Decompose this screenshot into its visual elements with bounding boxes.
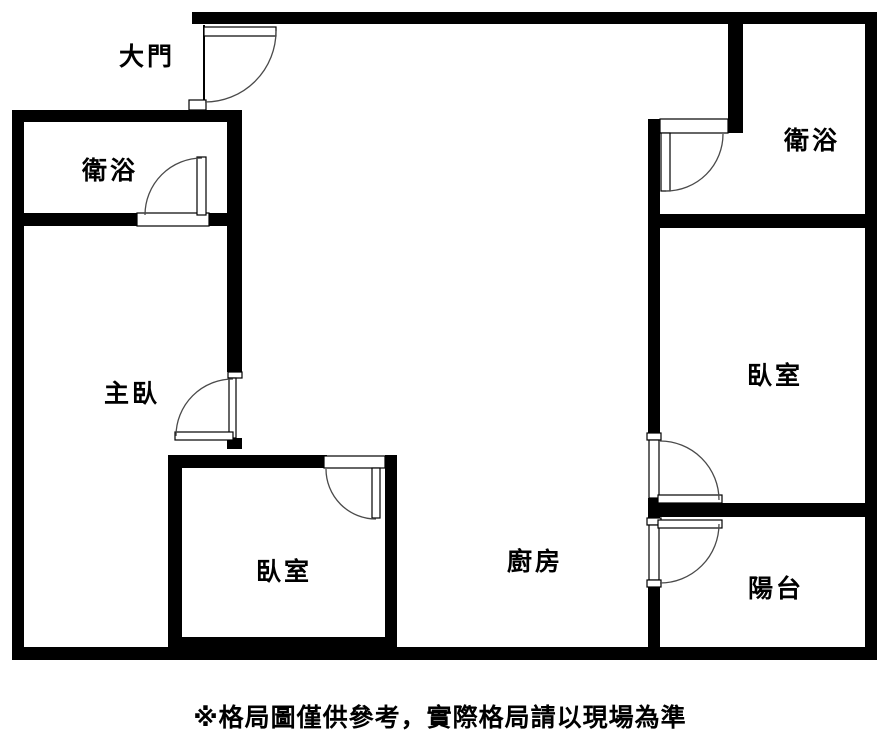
master-door-arc: [176, 379, 233, 436]
entrance-door-leaf: [204, 27, 276, 36]
wall-right-outer: [865, 12, 877, 660]
bedroom-right-door-arc: [660, 441, 719, 500]
wall-bath-left-bottom-b: [207, 213, 242, 226]
bedroom-bottom-door-arc: [326, 469, 376, 519]
kitchen-wall-jamb-3: [647, 580, 661, 587]
bath-right-door-frame: [660, 119, 728, 133]
bath-right-door-arc: [666, 134, 723, 191]
master-door-jamb: [228, 372, 242, 378]
wall-left-outer: [12, 110, 24, 660]
wall-bath-left-bottom-a: [12, 213, 138, 226]
walls: [12, 12, 877, 660]
disclaimer-caption: ※格局圖僅供參考，實際格局請以現場為準: [193, 698, 686, 734]
wall-top: [192, 12, 877, 24]
label-balcony: 陽台: [748, 569, 804, 605]
bedroom-bottom-door-leaf: [372, 468, 380, 518]
label-bathroom-right: 衛浴: [784, 121, 840, 157]
wall-bedroom-bottom-left: [168, 455, 182, 650]
wall-bath-right-bottom: [648, 214, 877, 228]
wall-bath-left-top: [12, 110, 242, 122]
balcony-door-leaf: [658, 520, 722, 528]
label-bedroom-bottom: 臥室: [256, 552, 312, 588]
label-main-door: 大門: [119, 37, 175, 73]
wall-bedroom-bottom-top: [168, 455, 327, 468]
bedroom-bottom-door-frame: [324, 456, 385, 468]
wall-bedroom-bottom-right: [385, 455, 397, 650]
entrance-door-arc: [205, 31, 276, 102]
label-kitchen: 廚房: [507, 542, 563, 578]
bath-left-door-arc: [145, 158, 202, 215]
wall-bottom-outer: [12, 647, 877, 660]
label-bedroom-right: 臥室: [747, 356, 803, 392]
wall-bath-right-left: [728, 23, 743, 133]
floorplan-canvas: 大門 衛浴 衛浴 主臥 臥室 臥室 廚房 陽台 ※格局圖僅供參考，實際格局請以現…: [0, 0, 889, 746]
wall-bedroom-bottom-bottom: [168, 637, 397, 650]
bedroom-right-door-leaf: [658, 495, 722, 503]
bath-right-door-leaf: [661, 133, 670, 191]
kitchen-wall-jamb-1: [647, 433, 661, 440]
master-door-leaf: [175, 432, 233, 440]
label-bathroom-left: 衛浴: [82, 151, 138, 187]
balcony-door-arc: [660, 524, 719, 583]
bedroom-right-door-frame: [649, 440, 659, 498]
wall-kitchen-right-a: [648, 119, 660, 433]
bath-left-door-leaf: [197, 157, 206, 215]
master-door-frame: [229, 378, 236, 438]
balcony-door-frame: [649, 525, 659, 580]
wall-bath-left-right: [227, 110, 242, 372]
label-master-bedroom: 主臥: [104, 374, 160, 410]
wall-bedroom-right-balcony: [648, 503, 877, 517]
wall-kitchen-right-c: [648, 587, 660, 648]
entrance-door-jamb: [189, 100, 206, 110]
